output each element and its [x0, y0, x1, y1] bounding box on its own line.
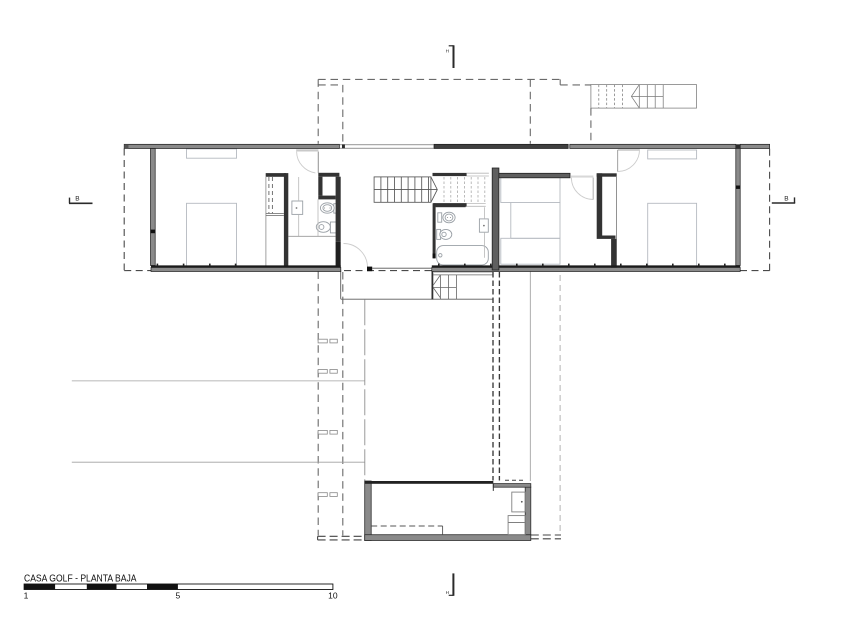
svg-text:10: 10 [328, 591, 338, 601]
svg-text:5: 5 [176, 591, 181, 601]
svg-text:H: H [446, 49, 449, 54]
svg-text:B: B [75, 195, 79, 202]
svg-text:CASA GOLF - PLANTA BAJA: CASA GOLF - PLANTA BAJA [24, 574, 137, 585]
svg-text:1: 1 [24, 591, 29, 601]
svg-text:B: B [784, 195, 788, 202]
svg-text:H: H [446, 590, 449, 595]
